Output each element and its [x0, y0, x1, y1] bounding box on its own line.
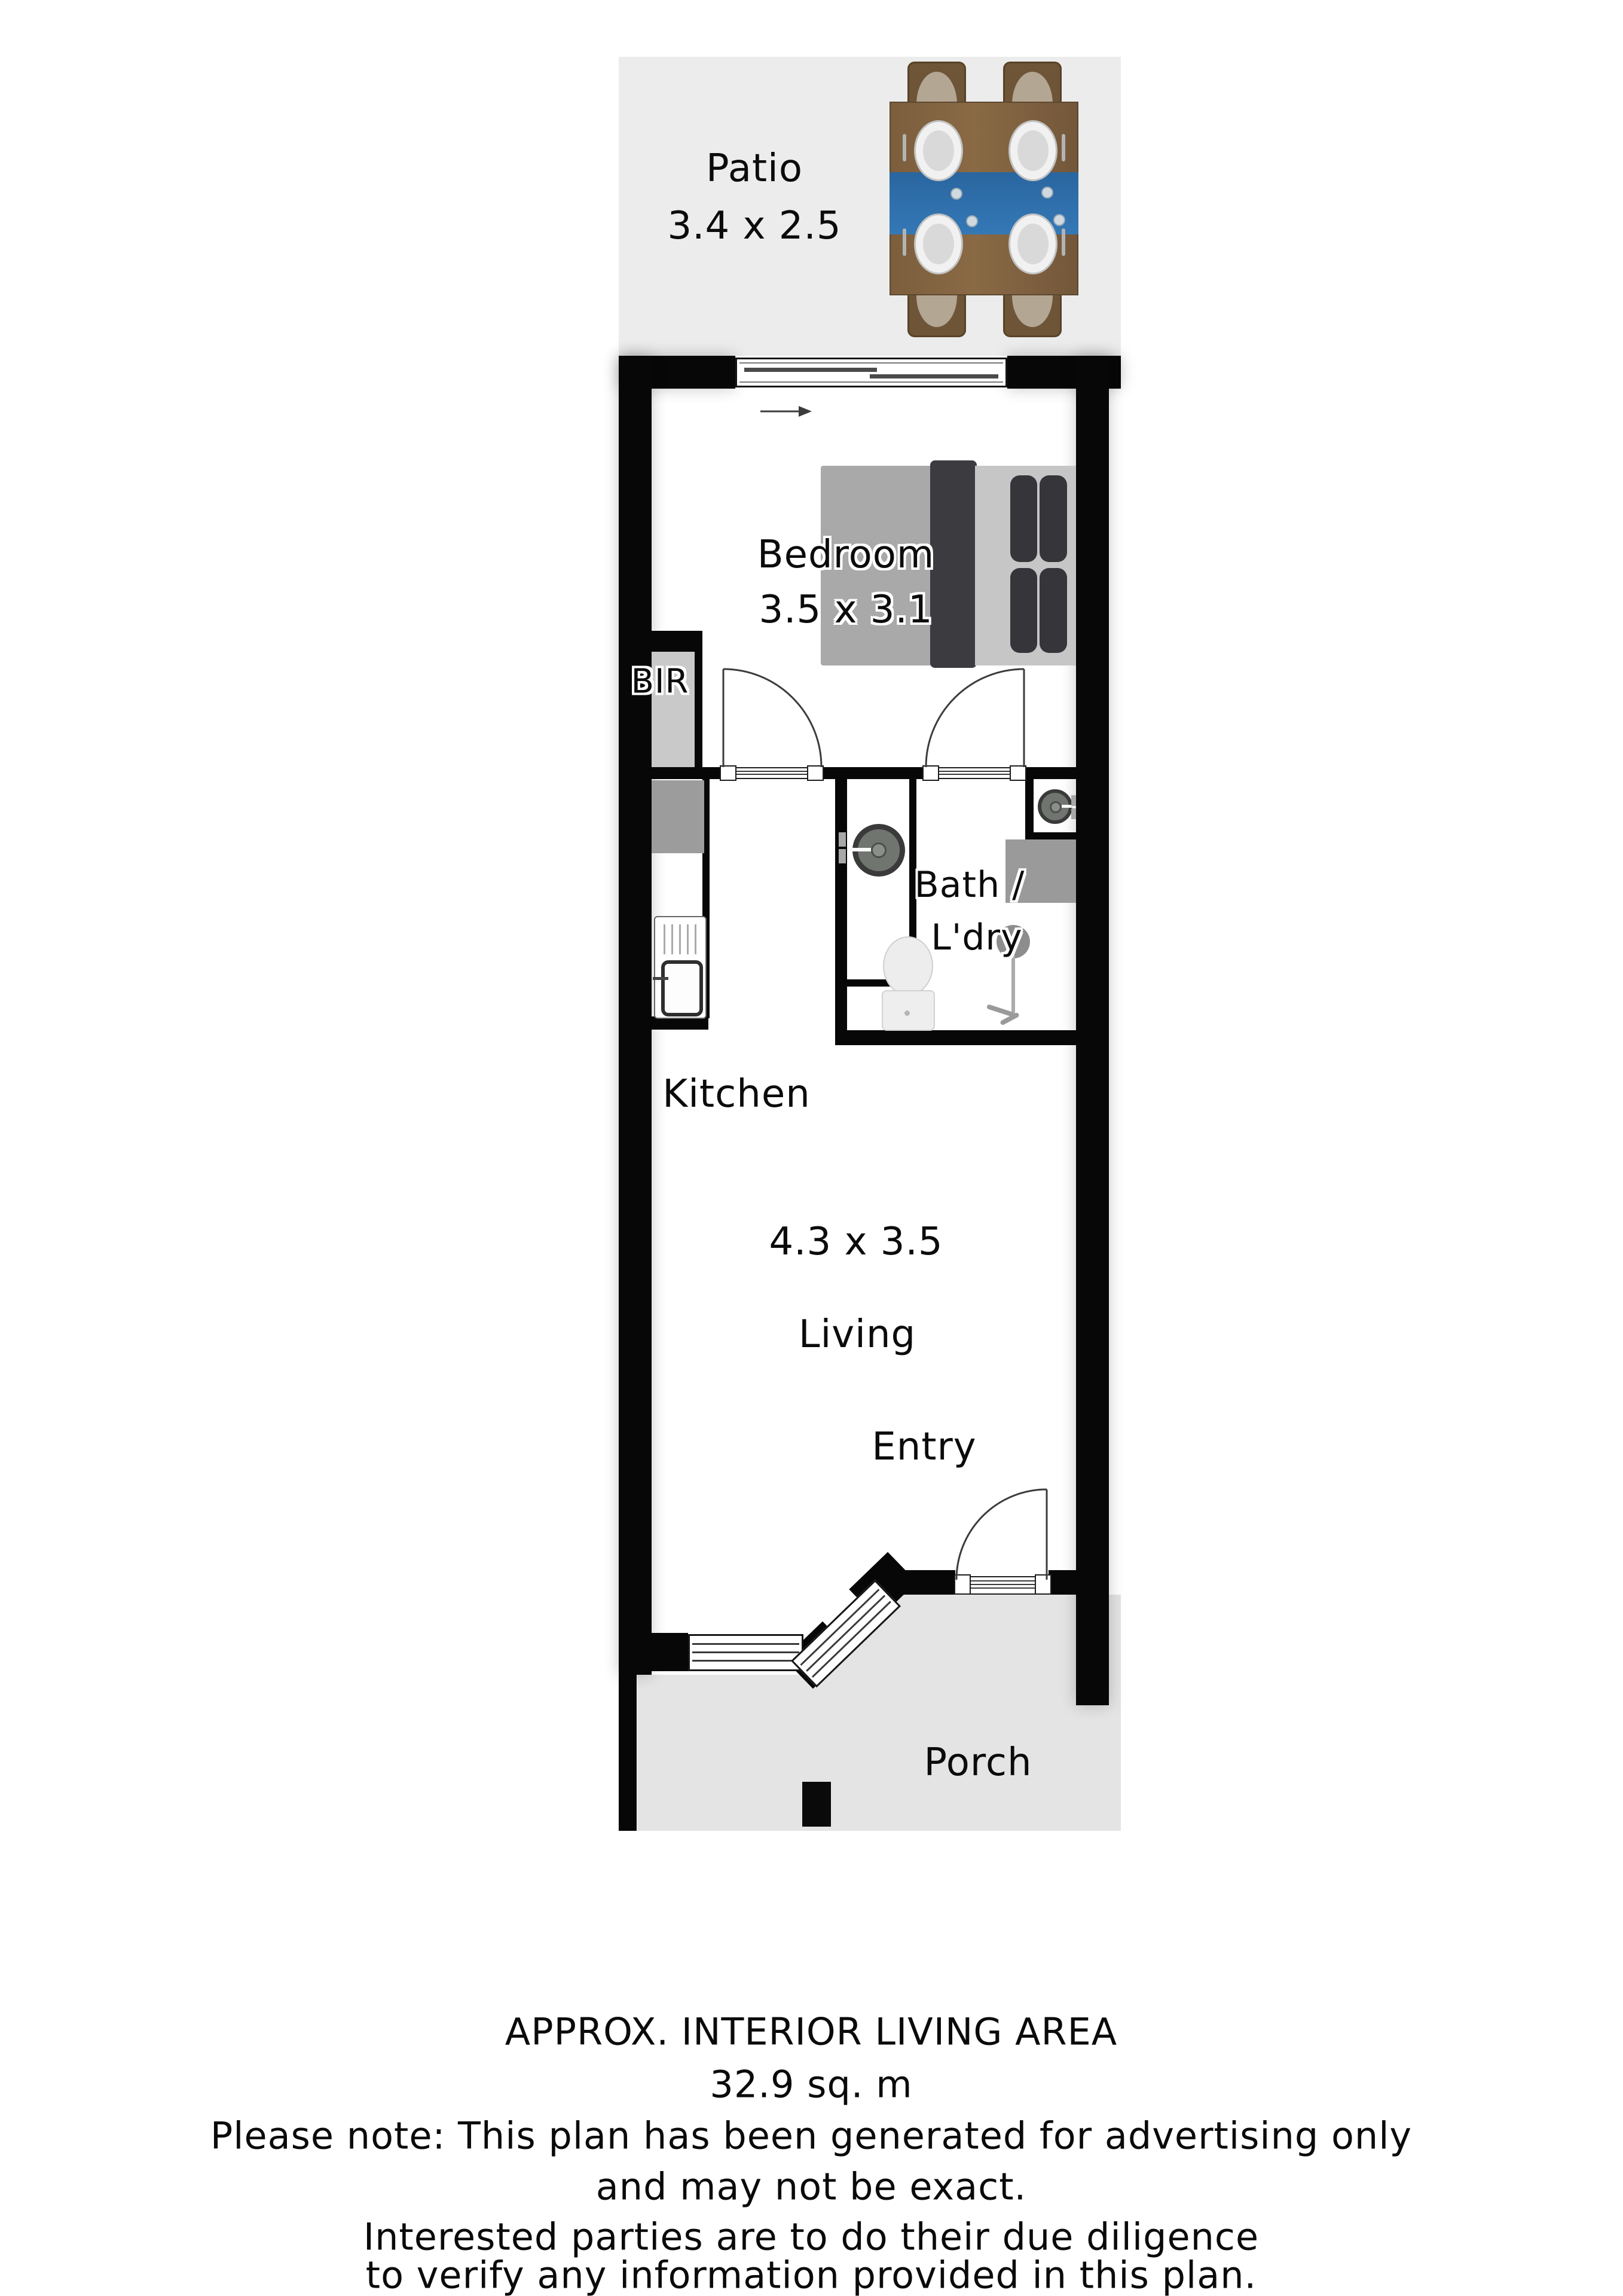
door-swing-icon [723, 669, 821, 767]
bedroom-dims: 3.5 x 3.1 [759, 588, 933, 632]
door-swing-icon [956, 1489, 1047, 1580]
footer-note-3: Interested parties are to do their due d… [363, 2215, 1259, 2259]
bedroom-label: Bedroom [757, 533, 934, 577]
footer-title: APPROX. INTERIOR LIVING AREA [505, 2010, 1117, 2054]
porch-label: Porch [924, 1741, 1032, 1785]
bath-label-line1: Bath / [915, 864, 1025, 906]
floor-plan: Patio 3.4 x 2.5 [0, 0, 1623, 2296]
living-label: Living [799, 1312, 916, 1357]
door-swing-arcs [0, 0, 1623, 2296]
direction-arrow-head [799, 406, 812, 417]
footer-note-1: Please note: This plan has been generate… [210, 2114, 1412, 2158]
footer-area: 32.9 sq. m [710, 2063, 912, 2106]
bath-label-line2: L'dry [931, 917, 1022, 958]
door-swing-icon [926, 669, 1024, 767]
entry-label: Entry [872, 1425, 976, 1469]
bir-label: BIR [631, 662, 689, 701]
kitchen-label: Kitchen [662, 1072, 811, 1116]
footer-note-2: and may not be exact. [596, 2165, 1026, 2209]
footer-note-4: to verify any information provided in th… [366, 2254, 1257, 2296]
living-dims: 4.3 x 3.5 [769, 1220, 943, 1264]
